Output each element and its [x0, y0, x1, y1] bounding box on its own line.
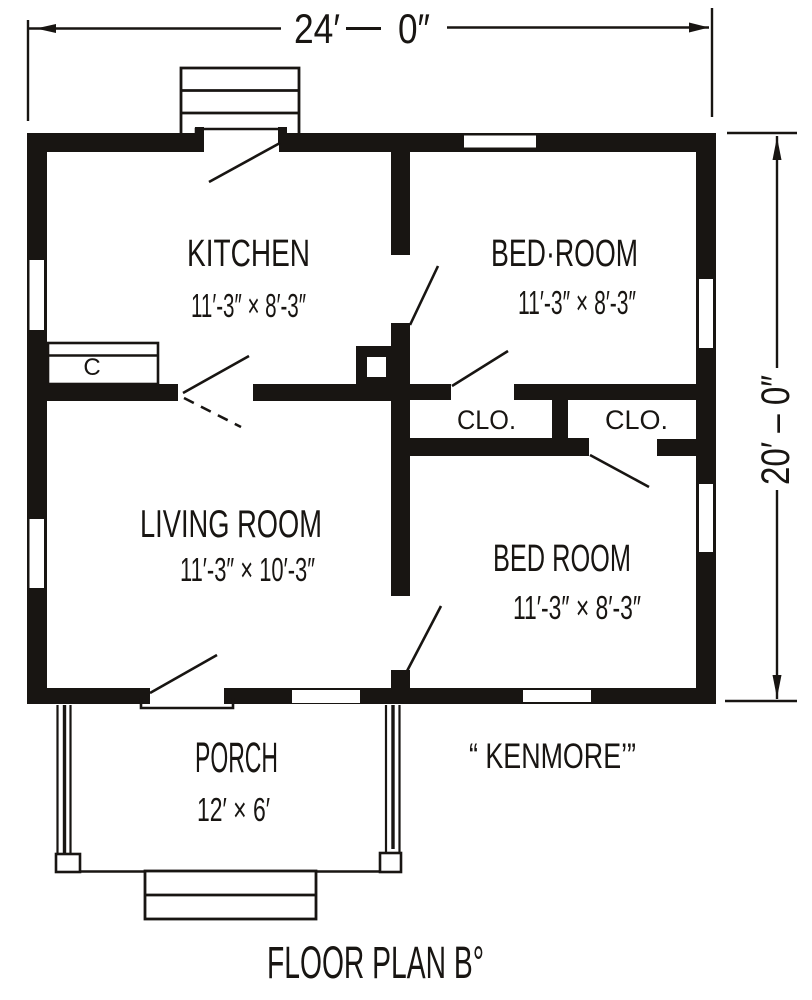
svg-text:20′ – 0″: 20′ – 0″: [754, 375, 798, 485]
svg-text:“ KENMORE’”: “ KENMORE’”: [469, 737, 636, 776]
svg-text:11′-3″ × 8′-3″: 11′-3″ × 8′-3″: [518, 284, 636, 321]
svg-text:FLOOR PLAN B°: FLOOR PLAN B°: [267, 937, 484, 988]
svg-text:BED·ROOM: BED·ROOM: [491, 233, 638, 275]
svg-text:LIVING ROOM: LIVING ROOM: [140, 503, 322, 546]
svg-text:11′-3″ × 10′-3″: 11′-3″ × 10′-3″: [180, 551, 315, 588]
svg-text:CLO.: CLO.: [457, 405, 516, 435]
svg-text:PORCH: PORCH: [195, 734, 278, 782]
svg-text:C: C: [83, 354, 100, 381]
svg-text:KITCHEN: KITCHEN: [187, 233, 310, 275]
svg-text:24′: 24′: [294, 5, 340, 52]
svg-text:0″: 0″: [398, 5, 430, 52]
svg-text:CLO.: CLO.: [605, 405, 668, 435]
svg-text:12′ × 6′: 12′ × 6′: [197, 791, 270, 828]
svg-text:11′-3″ × 8′-3″: 11′-3″ × 8′-3″: [513, 589, 641, 626]
svg-text:BED ROOM: BED ROOM: [493, 538, 631, 580]
svg-text:11′-3″ × 8′-3″: 11′-3″ × 8′-3″: [191, 287, 306, 324]
